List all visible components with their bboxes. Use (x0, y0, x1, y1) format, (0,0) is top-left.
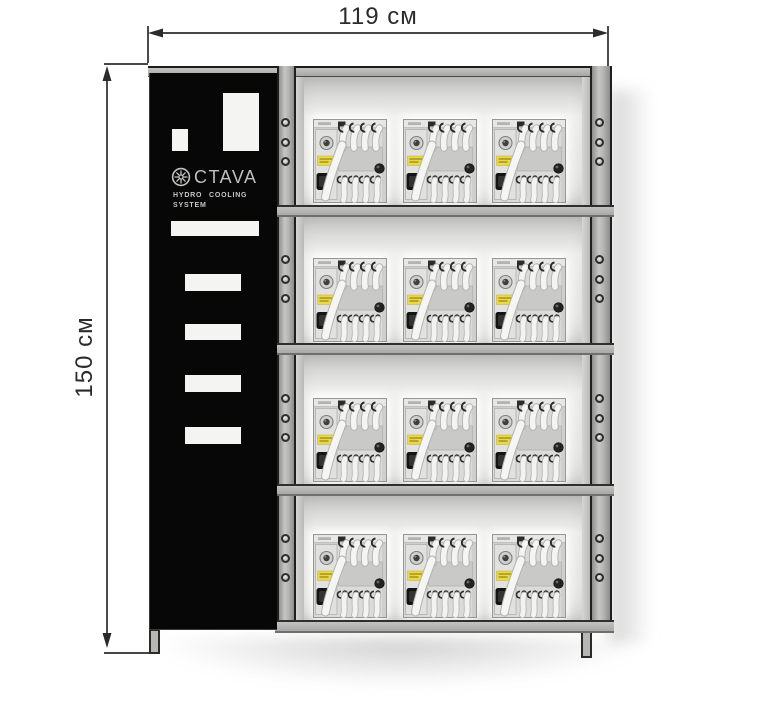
mount-hole (281, 573, 290, 582)
mount-hole (595, 118, 604, 127)
cabinet-right-shadow (610, 90, 652, 642)
miner-unit (403, 256, 477, 342)
mount-hole (595, 414, 604, 423)
mount-hole (281, 414, 290, 423)
mount-hole (595, 255, 604, 264)
octava-impeller-icon (171, 167, 191, 187)
miner-unit (403, 117, 477, 203)
height-dimension-label: 150 см (72, 311, 98, 403)
mount-hole (281, 554, 290, 563)
miner-unit (313, 117, 387, 203)
mount-hole (281, 118, 290, 127)
mount-hole (281, 394, 290, 403)
panel-vent-slot (185, 427, 241, 444)
miner-unit (313, 396, 387, 482)
cabinet-leg-right (581, 631, 592, 658)
cabinet-leg-left (149, 629, 160, 654)
figure-canvas: 119 см 150 см (0, 0, 757, 723)
mount-hole (595, 573, 604, 582)
shelf-rail-3 (275, 484, 614, 496)
panel-cutout (223, 93, 259, 151)
bottom-rail (275, 620, 614, 633)
miner-unit (403, 532, 477, 618)
mount-hole (595, 275, 604, 284)
brand-logo: CTAVA (171, 167, 258, 187)
shelf-rail-1 (275, 205, 614, 217)
mount-hole (595, 294, 604, 303)
panel-cutout (172, 129, 188, 151)
panel-vent-slot (185, 324, 241, 340)
mount-hole (281, 255, 290, 264)
panel-vent-slot (185, 375, 241, 392)
mount-hole (595, 433, 604, 442)
mount-hole (595, 157, 604, 166)
brand-logo-text: CTAVA (194, 167, 258, 187)
mount-hole (281, 534, 290, 543)
mount-hole (595, 394, 604, 403)
miner-unit (492, 256, 566, 342)
panel-vent-slot (171, 221, 259, 236)
miner-unit (492, 532, 566, 618)
mount-hole (281, 433, 290, 442)
mount-hole (595, 138, 604, 147)
shelf-rail-2 (275, 343, 614, 355)
mount-hole (595, 534, 604, 543)
mount-hole (281, 294, 290, 303)
miner-unit (313, 256, 387, 342)
mount-hole (595, 554, 604, 563)
mount-hole (281, 157, 290, 166)
miner-unit (492, 117, 566, 203)
panel-vent-slot (185, 274, 241, 291)
mount-hole (281, 138, 290, 147)
miner-unit (313, 532, 387, 618)
width-dimension-label: 119 см (303, 3, 453, 31)
brand-tagline-line1: HYDRO COOLING (173, 192, 247, 200)
brand-tagline-line2: SYSTEM (173, 202, 207, 210)
control-panel: CTAVA HYDRO COOLING SYSTEM (149, 73, 277, 630)
cabinet-bottom-shadow (150, 638, 650, 688)
miner-unit (492, 396, 566, 482)
mount-hole (281, 275, 290, 284)
miner-unit (403, 396, 477, 482)
